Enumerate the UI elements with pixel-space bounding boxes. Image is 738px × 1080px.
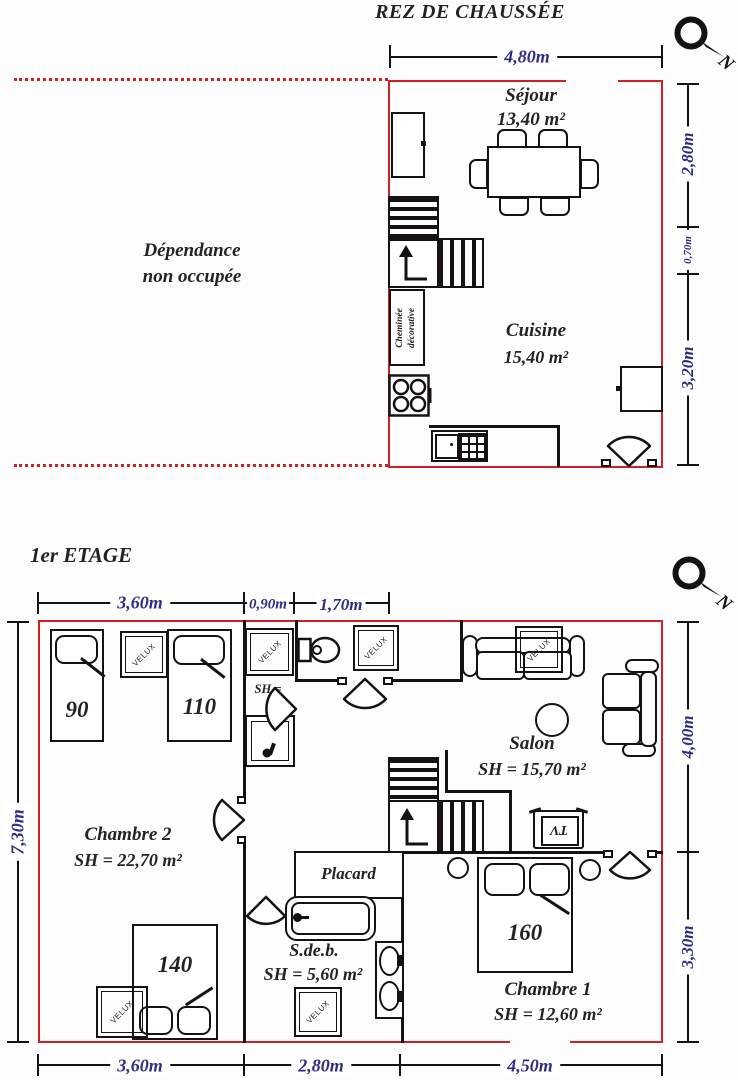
chambre2-area-label: SH = 22,70 m² — [53, 850, 203, 872]
bed-90-label: 90 — [50, 697, 104, 723]
gf-dim-top-label: 4,80m — [497, 47, 557, 68]
cuisine-label: Cuisine — [471, 320, 601, 343]
ff-dim-bottom-right-label: 4,50m — [500, 1056, 560, 1077]
bed-140-label: 140 — [132, 952, 218, 978]
ff-dim-tick — [293, 592, 295, 614]
chair — [499, 197, 529, 216]
dependance-dotted-line-top — [14, 78, 388, 81]
salon-label: Salon — [468, 733, 596, 756]
compass-north-icon: N — [666, 12, 738, 70]
gf-dim-right-top-label: 2,80m — [676, 127, 700, 182]
kitchen-table-handle — [616, 386, 621, 391]
nightstand — [447, 857, 469, 879]
closet-door — [265, 683, 297, 735]
sdb-door — [242, 896, 290, 924]
stairwell-wall — [509, 790, 512, 854]
bed-160-label: 160 — [477, 920, 573, 946]
gf-dim-right-bottom-label: 3,20m — [676, 341, 700, 396]
tv: TV — [533, 810, 584, 849]
ff-dim-right-top-label: 4,00m — [676, 710, 700, 765]
ff-dim-top-right-label: 1,70m — [317, 595, 366, 615]
ff-dim-tick — [677, 621, 699, 623]
decorative-fireplace: Cheminée décorative — [389, 289, 425, 366]
chambre1-door — [604, 851, 656, 877]
interior-wall — [388, 679, 463, 682]
ff-dim-tick — [243, 592, 245, 614]
velux-window: VELUX — [294, 987, 342, 1037]
tv-label: TV — [550, 821, 568, 837]
gf-dim-top-tick-right — [661, 45, 663, 68]
gf-window-gap — [566, 76, 618, 85]
sejour-area-label: 13,40 m² — [461, 109, 601, 132]
sejour-label: Séjour — [461, 85, 601, 108]
pillow — [177, 1006, 211, 1035]
counter-edge — [429, 425, 559, 428]
gf-dim-right-mid-label: 0,70m — [680, 230, 696, 270]
chair — [540, 197, 570, 216]
ff-window-gap — [510, 1039, 570, 1047]
sofa-cushion — [602, 709, 641, 745]
ff-dim-tick — [677, 851, 699, 853]
gf-dim-top-tick-left — [389, 45, 391, 68]
ff-dim-right-bottom-label: 3,30m — [676, 920, 700, 975]
sofa-arm — [625, 659, 659, 673]
ff-dim-bottom-left-label: 3,60m — [110, 1056, 170, 1077]
counter-side — [557, 425, 560, 467]
sofa-cushion — [602, 673, 641, 709]
chair — [469, 159, 488, 189]
chambre1-area-label: SH = 12,60 m² — [468, 1004, 628, 1026]
ff-dim-tick — [7, 1041, 29, 1043]
ff-dim-top-left-label: 3,60m — [110, 593, 170, 614]
fireplace-label-line2: décorative — [407, 291, 419, 365]
first-floor-title: 1er ETAGE — [30, 543, 200, 568]
chambre2-door — [213, 797, 245, 843]
chambre1-label: Chambre 1 — [478, 979, 618, 1002]
interior-wall — [243, 838, 246, 1043]
velux-window: VELUX — [120, 631, 168, 678]
sideboard — [391, 112, 425, 178]
pillow — [484, 863, 525, 896]
gf-stairs-lower-treads — [437, 238, 484, 288]
sink-tap — [397, 991, 402, 1002]
ff-dim-tick — [37, 1054, 39, 1076]
gf-stairs-treads — [388, 196, 439, 240]
dependance-label-line1: Dépendance — [112, 240, 272, 263]
chair — [497, 129, 527, 148]
stairwell-wall — [445, 790, 512, 793]
dependance-label-line2: non occupée — [112, 266, 272, 289]
ff-dim-tick — [388, 592, 390, 614]
placard: Placard — [294, 851, 404, 899]
kitchen-table — [620, 366, 663, 412]
nightstand — [579, 859, 601, 881]
compass-n-label: N — [713, 50, 738, 76]
floor-plan-page: REZ DE CHAUSSÉE N 4,80m Dépendance non o… — [0, 0, 738, 1080]
gf-dim-tick — [677, 83, 699, 85]
bathtub — [285, 896, 376, 941]
kitchen-sink — [431, 430, 488, 462]
wc-door — [338, 678, 392, 705]
gf-dim-tick — [677, 273, 699, 275]
ground-floor-title: REZ DE CHAUSSÉE — [340, 0, 600, 24]
ff-dim-tick — [677, 1041, 699, 1043]
fireplace-label-line1: Cheminée — [395, 291, 407, 365]
sdb-label: S.de.b. — [268, 940, 360, 962]
ff-dim-tick — [661, 1054, 663, 1076]
ff-dim-tick — [399, 1054, 401, 1076]
velux-window: VELUX — [515, 626, 563, 673]
velux-window: VELUX — [96, 986, 148, 1038]
pillow — [173, 635, 225, 665]
sdb-area-label: SH = 5,60 m² — [238, 964, 388, 986]
sideboard-handle — [421, 141, 426, 146]
ff-stairs-lower-treads — [437, 800, 484, 853]
chambre2-label: Chambre 2 — [57, 824, 199, 847]
ff-stairs-treads — [388, 757, 439, 802]
velux-window: VELUX — [353, 625, 399, 671]
ff-dim-right-line — [687, 622, 689, 1043]
compass-n-label: N — [711, 590, 737, 616]
ff-dim-tick — [243, 1054, 245, 1076]
salon-area-label: SH = 15,70 m² — [443, 759, 621, 781]
chair — [580, 159, 599, 189]
shower-tap-icon — [260, 740, 280, 760]
chair — [538, 129, 568, 148]
compass-north-icon: N — [664, 552, 736, 610]
stove-icon — [388, 374, 432, 417]
sink-tap — [397, 955, 402, 966]
bed-110-label: 110 — [167, 694, 232, 720]
pillow — [55, 635, 98, 664]
pillow — [529, 863, 570, 896]
ff-dim-bottom-mid-label: 2,80m — [291, 1056, 351, 1077]
ff-dim-tick — [37, 592, 39, 614]
dependance-dotted-line-bottom — [14, 464, 388, 467]
velux-window: VELUX — [245, 628, 294, 676]
ff-dim-top-mid-label: 0,90m — [247, 597, 289, 614]
ff-stairs-up-arrow-icon — [392, 806, 432, 848]
gf-stairs-up-arrow-icon — [391, 243, 431, 283]
gf-entrance-door — [602, 437, 656, 467]
round-table — [535, 703, 569, 737]
ff-dim-tick — [7, 621, 29, 623]
gf-dim-tick — [677, 464, 699, 466]
sofa-back — [640, 671, 657, 747]
dining-table — [487, 146, 581, 198]
gf-dim-tick — [677, 226, 699, 228]
ff-dim-left-label: 7,30m — [6, 803, 31, 861]
placard-label: Placard — [296, 864, 401, 884]
cuisine-area-label: 15,40 m² — [471, 347, 601, 369]
toilet-icon — [297, 634, 341, 666]
